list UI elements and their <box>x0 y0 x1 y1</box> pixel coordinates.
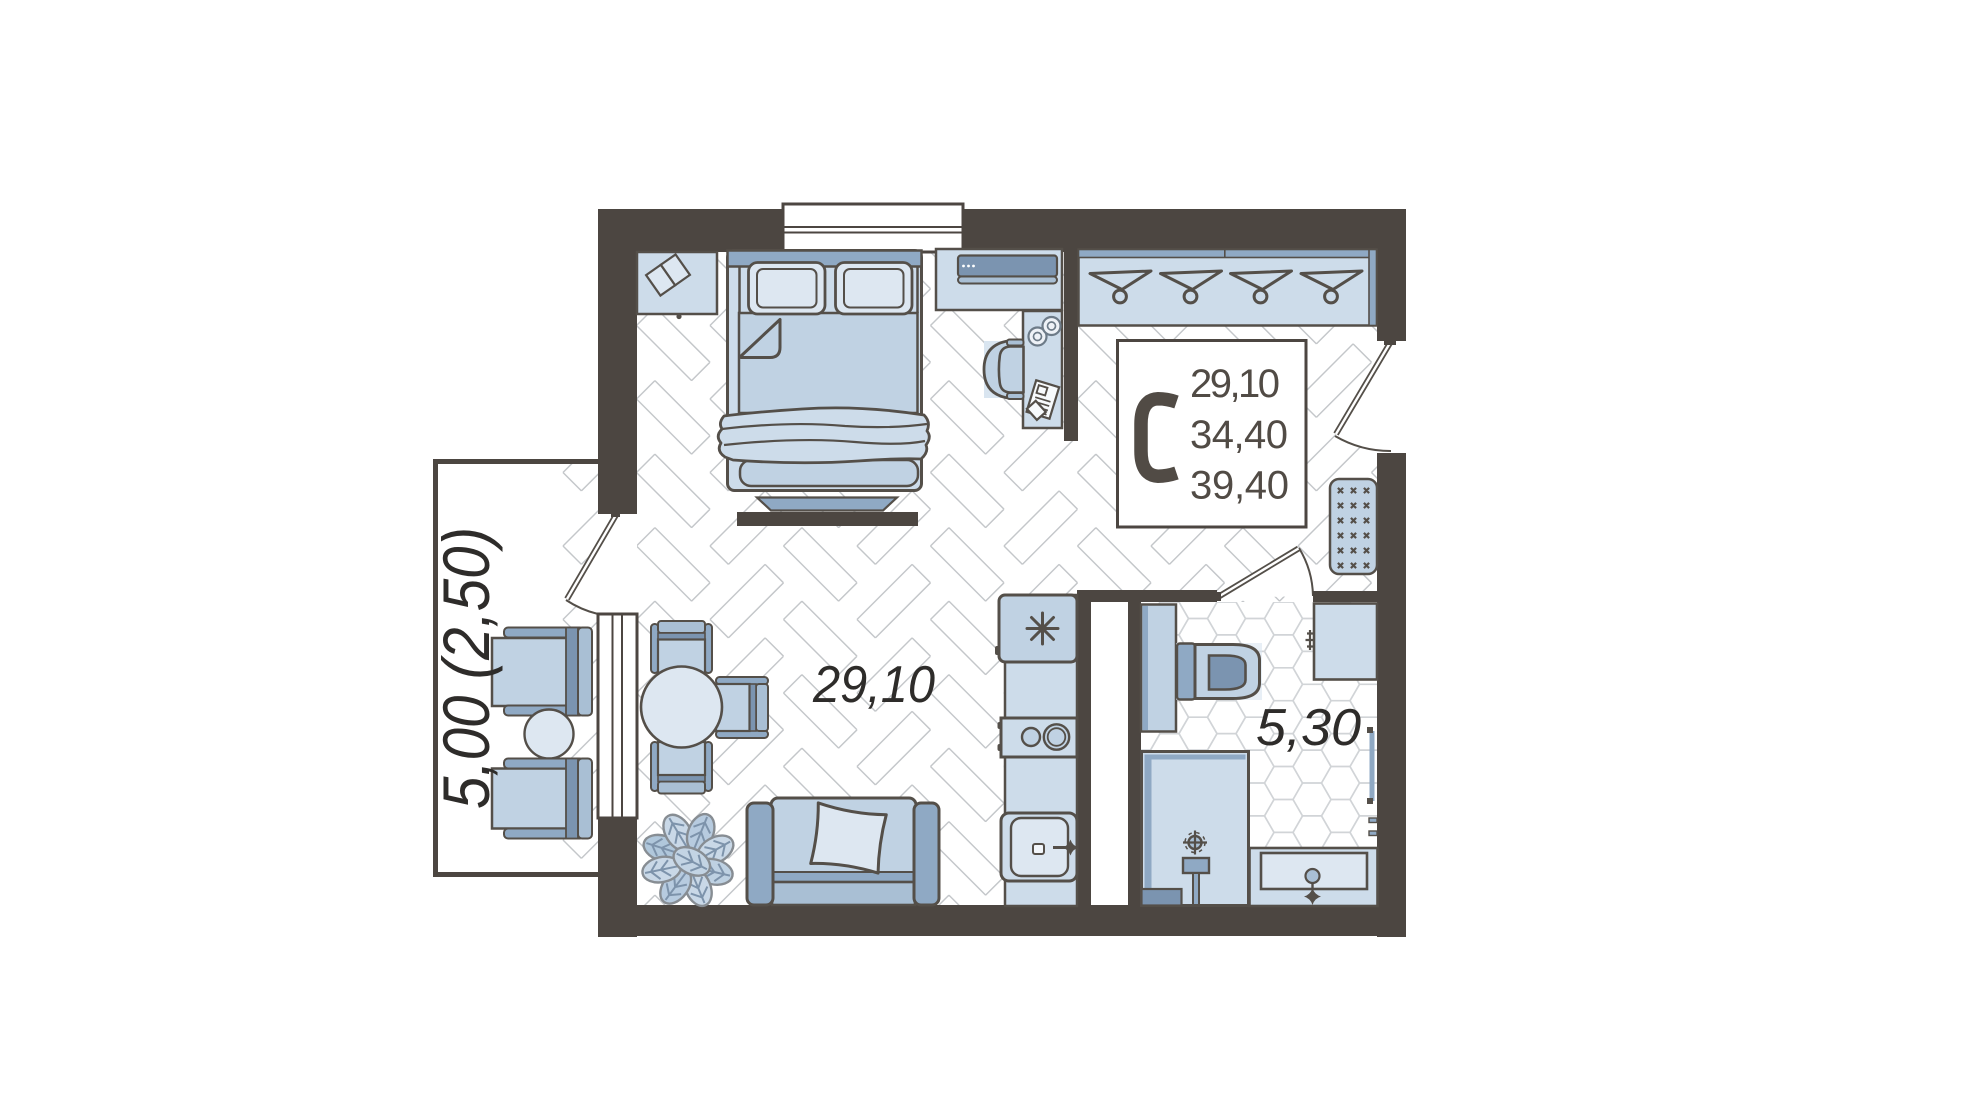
svg-text:34,40: 34,40 <box>1190 413 1288 457</box>
svg-text:5,30: 5,30 <box>1256 699 1361 757</box>
svg-text:29,10: 29,10 <box>1190 362 1280 406</box>
svg-text:5,00 (2,50): 5,00 (2,50) <box>429 527 503 809</box>
svg-text:29,10: 29,10 <box>812 656 935 714</box>
svg-text:39,40: 39,40 <box>1190 464 1289 508</box>
